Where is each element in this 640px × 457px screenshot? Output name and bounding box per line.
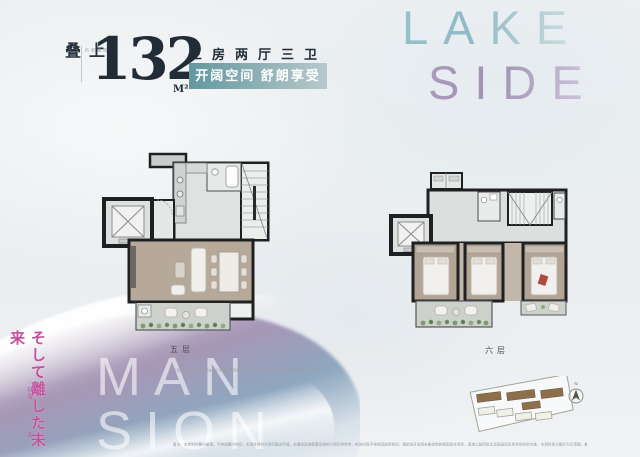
floorplan-5f — [95, 138, 277, 352]
siteplan-buildings — [469, 376, 574, 432]
bedroom-2-6f — [465, 243, 503, 301]
utility-boxes-6f — [431, 173, 462, 189]
header-divider — [81, 46, 82, 82]
entry-hall-5f — [152, 200, 174, 240]
bathroom-5f — [207, 163, 241, 191]
floor-label-6f: 六层 — [485, 345, 509, 356]
bathroom-mid-6f — [478, 192, 500, 221]
bathroom-right-6f — [554, 193, 565, 219]
japanese-ruby-2: み — [25, 432, 34, 439]
right-balcony-6f — [521, 301, 566, 315]
staircase-5f — [241, 163, 268, 240]
balcony-6f — [416, 301, 492, 327]
area-value: 132 — [91, 28, 203, 92]
balcony-5f — [136, 302, 230, 330]
rooms-spec: 三房两厅三卫 — [189, 44, 327, 63]
brand-side-text: SIDE — [428, 55, 598, 110]
floorplan-6f — [383, 163, 583, 335]
floor-label-5f: 五层 — [170, 344, 194, 355]
slogan-badge: 开阔空间 舒朗享受 — [189, 63, 327, 89]
area-unit: M² — [173, 84, 188, 95]
footer-disclaimer: 备注：本资料为要约邀请，不构成要约内容；本宣传资料对项目周边环境、交通及其他配套… — [173, 436, 587, 454]
floorplan-caption: 本户型图为上叠五层平面布置示意图，建筑面积约132㎡，最终以实际交付及商品房买卖… — [95, 362, 345, 380]
poster-page: MAN SION そして離した未来 はな み 上叠 建筑面积约 132 M² 三… — [0, 0, 640, 457]
wall-block-5f — [228, 302, 253, 319]
hall-6f — [503, 243, 523, 301]
living-dining-5f — [129, 240, 253, 302]
staircase-6f — [508, 192, 552, 225]
bedroom-1-6f — [413, 243, 458, 301]
bedroom-3-6f — [523, 243, 566, 301]
north-arrow-icon: N — [564, 378, 588, 410]
japanese-ruby-1: はな — [25, 386, 34, 400]
north-label: N — [574, 381, 577, 386]
siteplan-map — [466, 376, 578, 432]
brand-lake-text: LAKE — [402, 0, 582, 55]
